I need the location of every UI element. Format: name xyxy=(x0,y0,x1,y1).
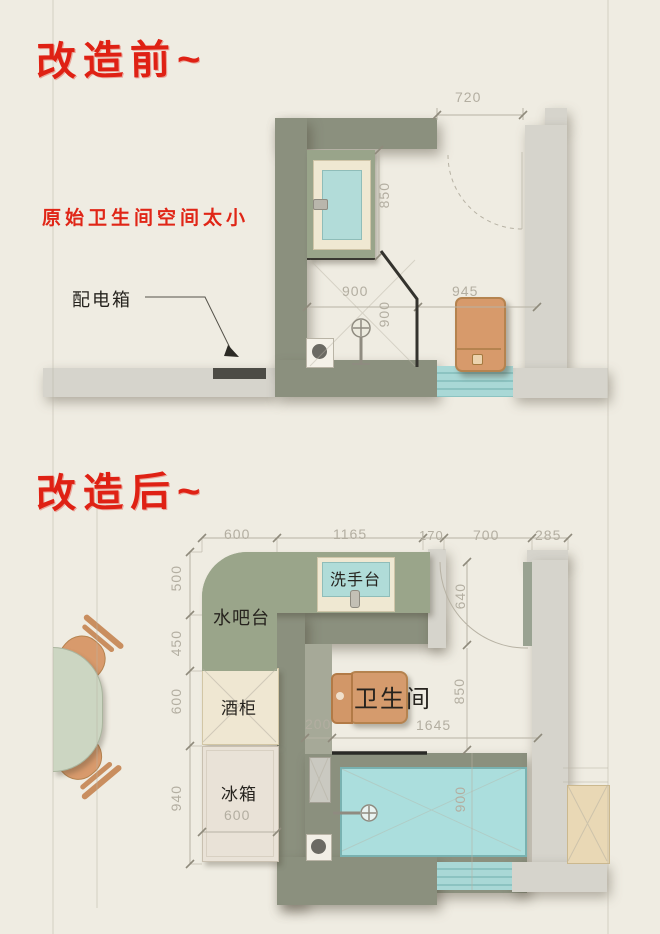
dim-945: 945 xyxy=(452,283,478,299)
dim-900-bath: 900 xyxy=(452,786,468,812)
after-window xyxy=(437,862,512,890)
dim-1645: 1645 xyxy=(416,717,451,733)
after-right-wall xyxy=(532,560,568,863)
dim-900-d: 900 xyxy=(376,301,392,327)
distribution-box xyxy=(213,368,266,379)
before-title: 改造前~ xyxy=(36,27,208,88)
dim-700: 700 xyxy=(473,527,499,543)
bathtub xyxy=(340,767,527,857)
dim-200: 200 xyxy=(305,716,331,732)
dim-850: 850 xyxy=(376,182,392,208)
after-title: 改造后~ xyxy=(36,459,208,520)
dim-285: 285 xyxy=(535,527,561,543)
floorplan-poster: 改造前~ 原始卫生间空间太小 配电箱 720 850 900 945 900 改… xyxy=(0,0,660,934)
after-bottom-wall xyxy=(277,857,437,905)
bathroom-label: 卫生间 xyxy=(354,679,432,714)
door-leaf xyxy=(523,562,532,646)
dim-900-w: 900 xyxy=(342,283,368,299)
before-sink xyxy=(322,170,362,240)
dim-940-left: 940 xyxy=(168,785,184,811)
before-left-wall xyxy=(275,118,307,368)
dim-600-fridge: 600 xyxy=(224,807,250,823)
water-bar-label: 水吧台 xyxy=(213,604,270,630)
before-drain-hole-icon xyxy=(312,344,327,359)
dim-450-left: 450 xyxy=(168,630,184,656)
after-faucet-icon xyxy=(350,590,360,608)
dim-500-left: 500 xyxy=(168,565,184,591)
before-right-wall-foot xyxy=(513,368,608,398)
after-return-wall xyxy=(305,644,332,754)
dim-640: 640 xyxy=(452,583,468,609)
dim-600-top: 600 xyxy=(224,526,250,542)
dim-720: 720 xyxy=(455,89,481,105)
outside-cabinet xyxy=(567,785,610,864)
before-faucet-icon xyxy=(313,199,328,210)
dim-170: 170 xyxy=(419,528,444,543)
distribution-box-label: 配电箱 xyxy=(72,286,132,312)
dim-850-after: 850 xyxy=(451,678,467,704)
after-right-wall-foot xyxy=(512,862,607,892)
before-bottom-wall xyxy=(275,360,437,397)
before-note: 原始卫生间空间太小 xyxy=(42,203,249,230)
toilet-button-icon xyxy=(336,692,344,700)
dim-1165: 1165 xyxy=(333,526,367,542)
after-door-stub-wall xyxy=(428,549,446,648)
shower-niche xyxy=(309,757,331,803)
before-water-heater-knob-icon xyxy=(472,354,483,365)
after-drain-hole-icon xyxy=(311,839,326,854)
fridge-label: 冰箱 xyxy=(221,780,257,805)
wine-cabinet-label: 酒柜 xyxy=(221,694,257,719)
before-right-wall xyxy=(525,125,567,370)
washbasin-label: 洗手台 xyxy=(330,566,381,590)
dim-600-left: 600 xyxy=(168,688,184,714)
before-water-heater-divider xyxy=(456,348,501,350)
